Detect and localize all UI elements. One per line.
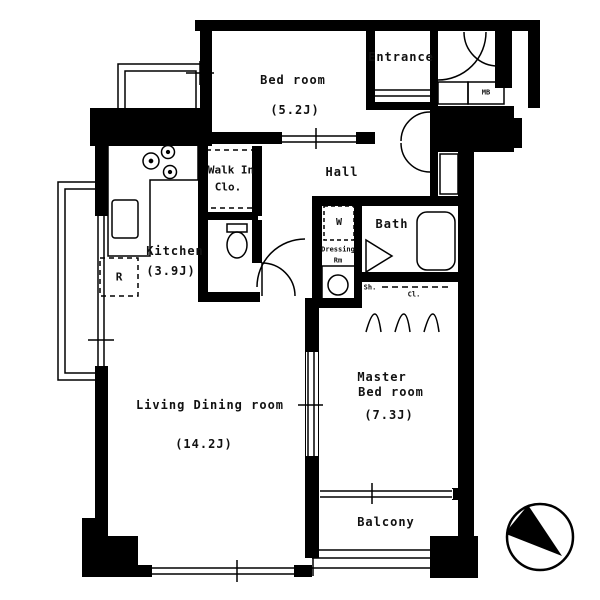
wall-wic-toilet-divider [202,212,258,220]
entrance-door-leaf-1 [438,32,486,80]
wall-kitchen-north [90,108,212,146]
washer-label: W [336,218,342,228]
stove-icon [143,146,177,179]
wall-bath-bottom [354,272,468,282]
balcony-label: Balcony [357,516,415,528]
pipe-shaft-step [500,118,522,148]
shelf-label: Sh. [364,285,377,292]
kitchen-sink [112,200,138,238]
wall-bedroom-entrance [366,28,375,108]
pillar-southwest-b [95,536,138,577]
wall-closet-left [354,278,362,304]
kitchen-label: Kitchen [146,245,204,257]
window-bedroom-bottom [282,128,356,149]
bedroom-label: Bed room [260,74,326,86]
wic-label-line1: Walk In [208,165,254,176]
window-south-living [152,560,294,582]
compass-north-icon [506,504,573,570]
dressing-label-line1: Dressing [321,247,355,254]
bath-label: Bath [376,218,409,230]
wall-toilet-right [252,220,262,263]
wall-northeast [528,20,540,108]
bedroom-size: (5.2J) [270,104,319,116]
hall-storage-box [440,154,458,194]
kitchen-counter [108,146,198,256]
refrigerator-label: R [116,272,123,283]
washbasin-icon [328,275,348,295]
dressing-label-line2: Rm [334,258,342,265]
floor-plan-drawing [0,0,600,600]
wall-dressing-bath-divider [354,200,362,280]
floor-plan: Bed room (5.2J) Entrance MB Walk In Clo.… [0,0,600,600]
balcony-railing [312,498,432,576]
washbasin-counter [322,266,356,302]
kitchen-size: (3.9J) [146,265,195,277]
hall-label: Hall [326,166,359,178]
meter-box-label: MB [482,90,490,97]
master-label-line2: Bed room [358,386,424,398]
master-size: (7.3J) [364,409,413,421]
wall-master-balcony-right [452,488,474,500]
wall-porch-stub [495,20,512,88]
closet-door-2 [395,314,410,332]
wall-west-upper [95,146,108,216]
entrance-label: Entrance [368,51,434,63]
window-bay-north [118,64,203,110]
closet-label: Cl. [408,292,421,299]
wall-toilet-bottom [198,292,260,302]
bathtub-icon [417,212,455,270]
wall-south-right [294,565,312,577]
closet-door-3 [424,314,439,332]
wall-sanitary-top [312,196,468,206]
meter-box-left [438,82,468,104]
master-label-line1: Master [357,371,406,383]
living-room-size: (14.2J) [175,438,233,450]
wall-west-lower [95,366,108,542]
entrance-door-leaf-2 [464,32,498,66]
hall-cabinet-door-1 [401,112,430,141]
closet-door-1 [366,314,381,332]
wall-south-left [132,565,152,577]
bath-folding-door [366,240,392,272]
living-room-label: Living Dining room [136,399,284,411]
window-west [88,216,114,366]
wic-dashed-box [206,150,254,208]
wall-bedroom-bottom-right [356,132,375,144]
toilet-door [262,263,295,296]
toilet-icon [227,224,247,258]
wic-label-line2: Clo. [215,182,242,193]
entrance-step [375,90,430,96]
wall-entrance-hall [366,102,436,110]
pillar-southeast [430,536,478,578]
hall-cabinet-door-2 [401,143,430,172]
